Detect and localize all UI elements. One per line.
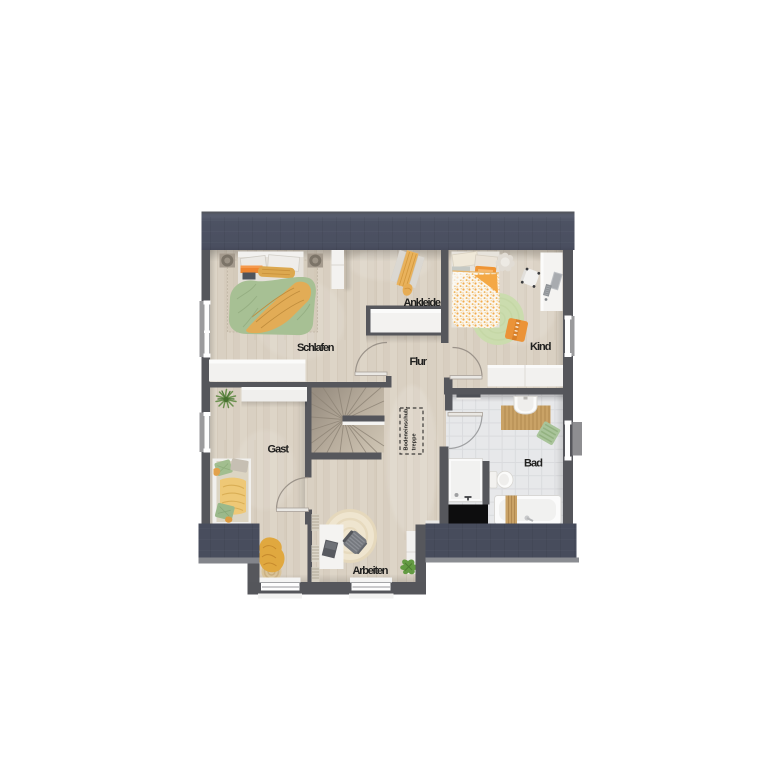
svg-text:Schlafen: Schlafen xyxy=(297,342,335,354)
svg-text:Ankleide: Ankleide xyxy=(404,297,442,309)
svg-text:Bodeneinschub-: Bodeneinschub- xyxy=(404,407,410,451)
svg-text:Bad: Bad xyxy=(524,458,543,470)
svg-text:treppe: treppe xyxy=(412,433,418,450)
svg-text:Kind: Kind xyxy=(530,341,552,353)
svg-text:Flur: Flur xyxy=(410,356,428,368)
svg-text:Arbeiten: Arbeiten xyxy=(353,565,389,577)
svg-text:Gast: Gast xyxy=(268,444,290,456)
